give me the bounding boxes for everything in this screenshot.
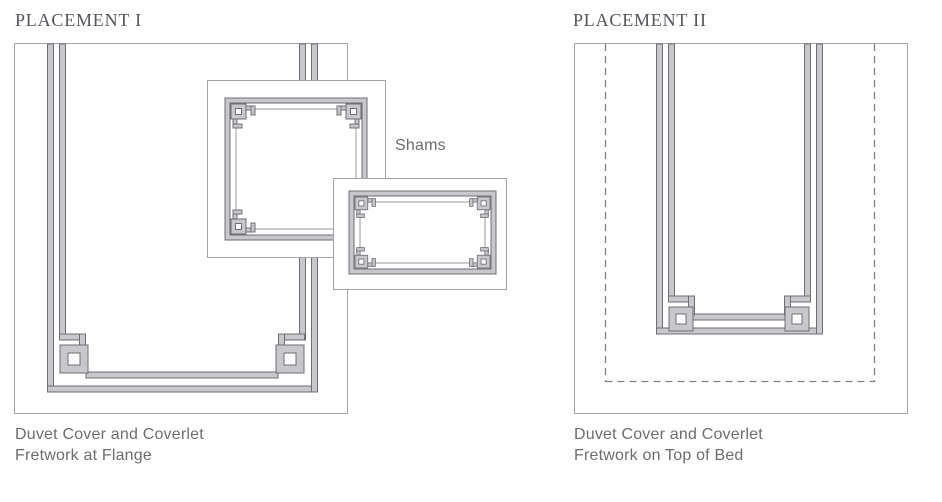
placement1-caption: Duvet Cover and Coverlet Fretwork at Fla… [15,424,204,466]
placement1-caption-line1: Duvet Cover and Coverlet [15,424,204,445]
duvet-cover-outline [575,44,908,414]
fretwork-corner-motif [60,334,89,373]
fretwork-corner-motif [669,296,695,331]
fretwork-corner-motif [785,296,811,331]
fretwork-corner-motif [276,334,305,373]
placement2-caption-line1: Duvet Cover and Coverlet [574,424,763,445]
placement2-title: PLACEMENT II [573,10,707,31]
standard-sham [334,179,507,290]
bedding-placement-figure: PLACEMENT I PLACEMENT II Shams Duvet Cov… [0,0,942,502]
placement2-caption-line2: Fretwork on Top of Bed [574,445,763,466]
placement1-caption-line2: Fretwork at Flange [15,445,204,466]
placement2-caption: Duvet Cover and Coverlet Fretwork on Top… [574,424,763,466]
placement1-title: PLACEMENT I [15,10,142,31]
placement1-diagram [15,44,507,414]
placement2-diagram [575,44,908,414]
shams-label: Shams [395,137,446,155]
